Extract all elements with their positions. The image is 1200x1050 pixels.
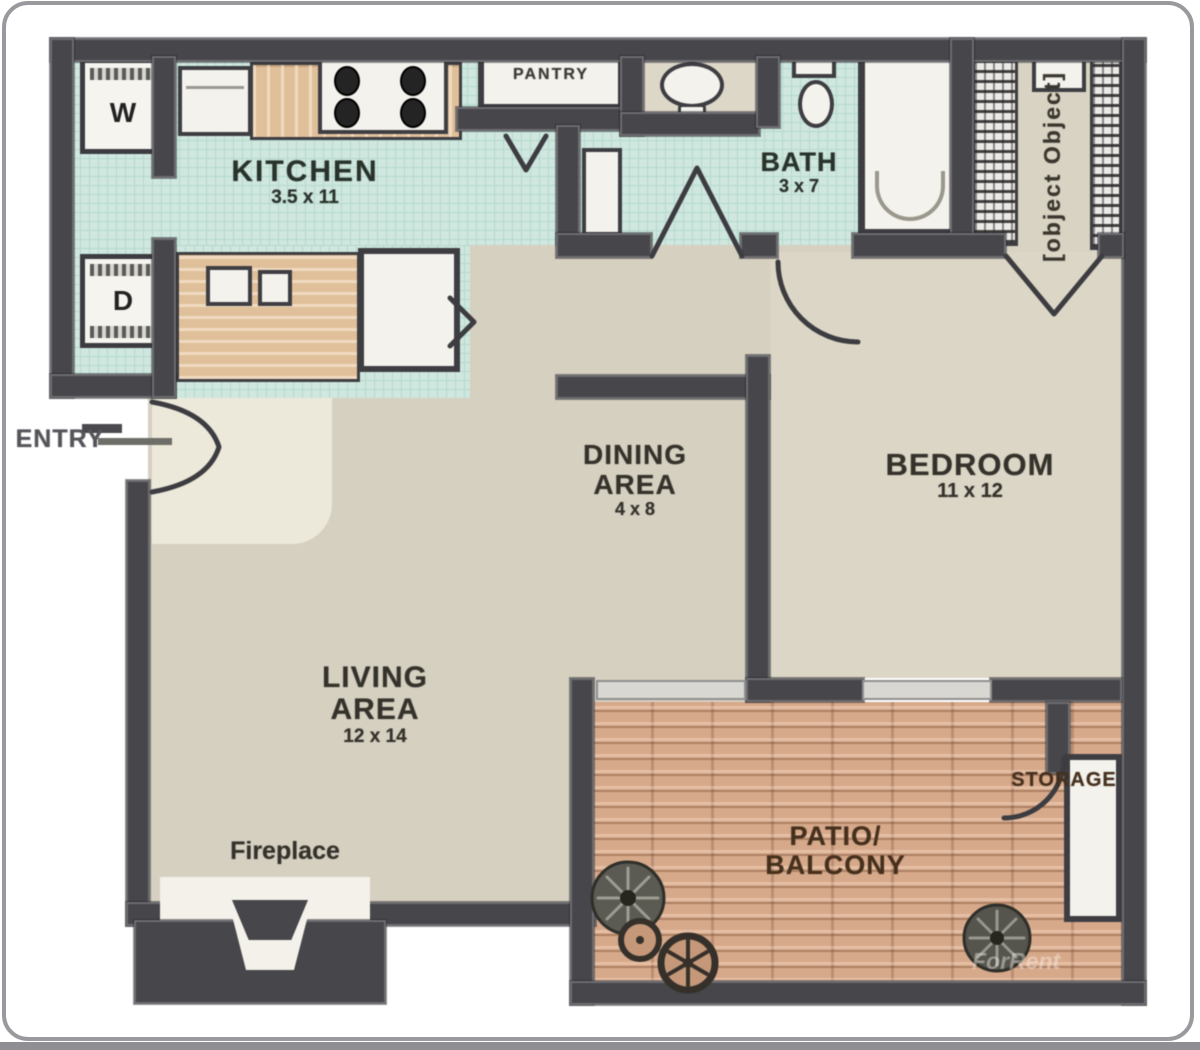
living-line2: AREA (275, 694, 475, 726)
closet-label: [object Object] (1028, 82, 1076, 250)
entry-name: ENTRY (14, 426, 106, 453)
utility-door-swing (450, 298, 474, 346)
fireplace-label: Fireplace (200, 838, 370, 865)
patio-pot-icon (621, 921, 659, 959)
patio-label: PATIO/ BALCONY (728, 822, 943, 880)
bath-name: BATH (714, 148, 884, 177)
image-frame-bottom (0, 1042, 1200, 1050)
floor-plan: W D (0, 0, 1200, 1050)
patio-table-icon (661, 936, 715, 990)
dining-line1: DINING (545, 440, 725, 470)
fireplace-name: Fireplace (200, 838, 370, 865)
dining-line2: AREA (545, 470, 725, 500)
entry-label: ENTRY (14, 426, 106, 453)
bedroom-dims: 11 x 12 (845, 481, 1095, 503)
bedroom-name: BEDROOM (845, 448, 1095, 481)
dining-dims: 4 x 8 (545, 500, 725, 519)
bath-dims: 3 x 7 (714, 177, 884, 196)
patio-line2: BALCONY (728, 851, 943, 880)
living-label: LIVING AREA 12 x 14 (275, 662, 475, 747)
kitchen-label: KITCHEN 3.5 x 11 (205, 156, 405, 209)
watermark: ForRent (972, 948, 1060, 975)
bedroom-door-swing (778, 262, 858, 342)
bath-label: BATH 3 x 7 (714, 148, 884, 197)
living-line1: LIVING (275, 662, 475, 694)
pantry-name: PANTRY (486, 66, 616, 83)
living-dims: 12 x 14 (275, 727, 475, 748)
storage-name: STORAGE (984, 770, 1144, 792)
dining-label: DINING AREA 4 x 8 (545, 440, 725, 520)
kitchen-name: KITCHEN (205, 156, 405, 188)
closet-door-swing (1006, 256, 1102, 314)
bedroom-label: BEDROOM 11 x 12 (845, 448, 1095, 503)
pantry-label: PANTRY (486, 66, 616, 83)
storage-label: STORAGE (984, 770, 1144, 792)
door-swings-and-plants (0, 0, 1200, 1050)
pantry-door-swing (506, 136, 546, 170)
patio-line1: PATIO/ (728, 822, 943, 851)
floor-plan-image: W D (0, 0, 1200, 1050)
kitchen-dims: 3.5 x 11 (205, 188, 405, 209)
closet-name: [object Object] (1040, 70, 1065, 261)
entry-door-swing (152, 402, 219, 492)
